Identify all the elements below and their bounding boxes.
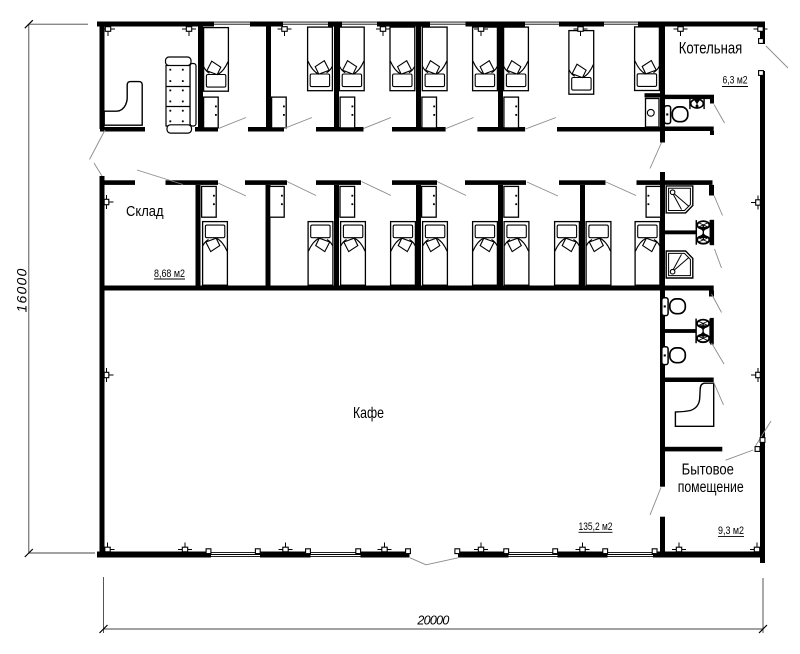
- svg-text:135,2 м2: 135,2 м2: [579, 521, 613, 533]
- svg-text:Котельная: Котельная: [679, 39, 743, 58]
- svg-text:9,3 м2: 9,3 м2: [718, 525, 744, 537]
- svg-text:8,68 м2: 8,68 м2: [154, 268, 185, 280]
- svg-text:Склад: Склад: [126, 203, 164, 220]
- svg-text:Кафе: Кафе: [353, 405, 384, 422]
- svg-text:помещение: помещение: [678, 479, 744, 496]
- svg-text:Бытовое: Бытовое: [682, 461, 734, 478]
- svg-text:20000: 20000: [416, 614, 449, 628]
- svg-text:6,3 м2: 6,3 м2: [723, 75, 748, 87]
- svg-text:16000: 16000: [14, 268, 30, 313]
